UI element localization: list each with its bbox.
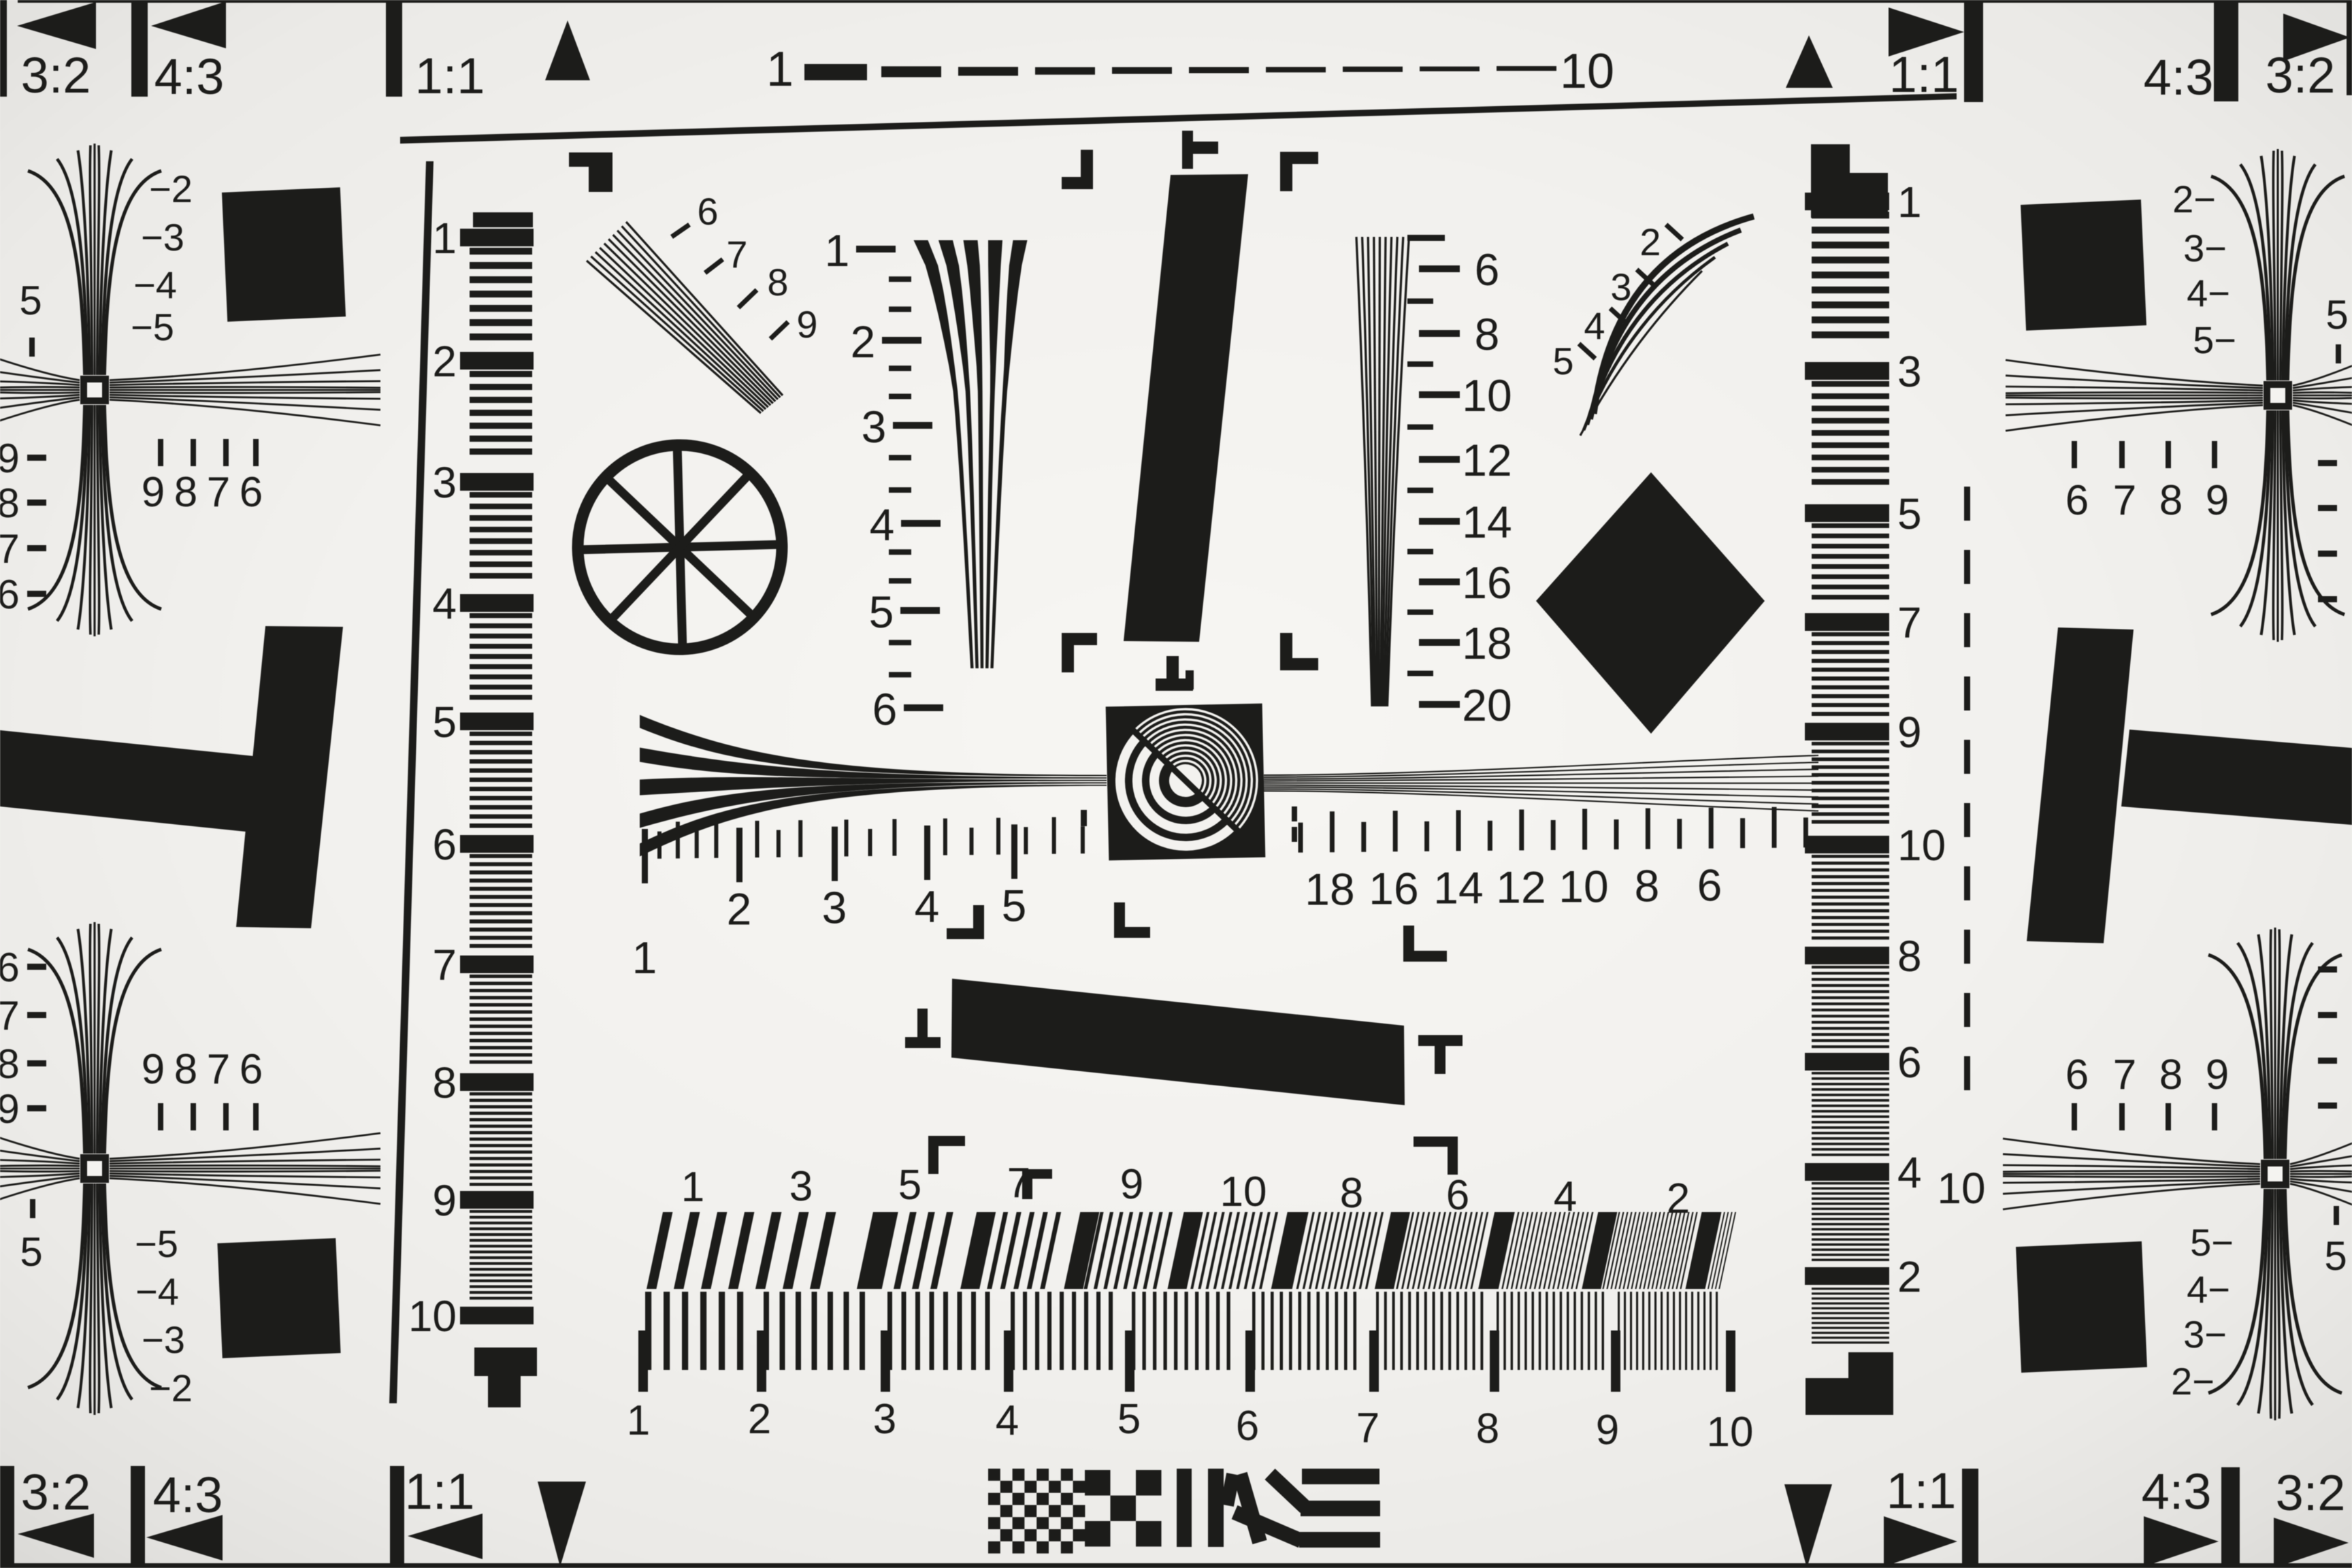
svg-text:1:1: 1:1	[405, 1463, 475, 1520]
svg-text:9: 9	[142, 1046, 165, 1093]
svg-text:7: 7	[1356, 1405, 1379, 1452]
svg-text:7: 7	[0, 526, 20, 572]
svg-text:16: 16	[1369, 863, 1418, 913]
svg-text:7: 7	[2113, 477, 2136, 524]
svg-text:8: 8	[0, 480, 20, 526]
svg-text:−2: −2	[149, 167, 193, 210]
svg-text:−3: −3	[141, 216, 184, 259]
svg-text:9: 9	[1897, 708, 1922, 757]
svg-text:5: 5	[19, 278, 42, 323]
svg-text:8: 8	[1340, 1170, 1363, 1217]
svg-text:2: 2	[1897, 1252, 1922, 1301]
svg-text:−5: −5	[131, 306, 174, 348]
svg-text:10: 10	[408, 1292, 457, 1341]
svg-text:9: 9	[796, 303, 817, 346]
svg-text:4:3: 4:3	[153, 1467, 223, 1523]
svg-text:1: 1	[632, 932, 657, 983]
svg-text:3:2: 3:2	[2276, 1465, 2346, 1521]
svg-text:6: 6	[1446, 1172, 1469, 1219]
svg-text:7: 7	[0, 993, 20, 1039]
svg-text:4: 4	[996, 1397, 1019, 1444]
svg-text:6: 6	[2065, 1051, 2089, 1098]
svg-text:9: 9	[0, 436, 20, 481]
svg-text:6: 6	[1697, 860, 1722, 911]
svg-text:9: 9	[0, 1086, 20, 1132]
svg-text:5: 5	[1552, 340, 1573, 382]
svg-text:5: 5	[432, 698, 457, 747]
svg-text:2: 2	[727, 883, 752, 934]
svg-text:4: 4	[1897, 1148, 1922, 1197]
svg-text:14: 14	[1462, 497, 1512, 547]
svg-text:12: 12	[1496, 862, 1546, 913]
svg-text:3:2: 3:2	[21, 47, 91, 103]
svg-text:6: 6	[1897, 1038, 1922, 1087]
svg-text:6: 6	[240, 469, 263, 516]
svg-text:2−: 2−	[2171, 1360, 2215, 1403]
svg-text:5: 5	[20, 1229, 42, 1275]
svg-text:2: 2	[748, 1396, 771, 1443]
svg-text:1: 1	[825, 225, 850, 276]
svg-text:4−: 4−	[2187, 272, 2230, 314]
svg-text:3: 3	[789, 1163, 813, 1210]
svg-text:10: 10	[1558, 862, 1608, 912]
svg-text:−4: −4	[133, 263, 177, 306]
svg-text:6: 6	[0, 572, 20, 617]
svg-text:4: 4	[432, 579, 457, 628]
svg-text:4: 4	[870, 500, 895, 550]
svg-text:3: 3	[1610, 265, 1631, 308]
svg-text:5: 5	[2325, 292, 2348, 338]
svg-text:−2: −2	[149, 1367, 193, 1409]
svg-text:8: 8	[432, 1058, 457, 1107]
svg-text:4: 4	[1584, 304, 1605, 347]
svg-text:1: 1	[432, 214, 457, 263]
svg-text:8: 8	[0, 1041, 20, 1087]
svg-text:2: 2	[432, 337, 457, 386]
svg-text:10: 10	[1937, 1164, 1985, 1213]
svg-text:3: 3	[1897, 347, 1922, 396]
svg-text:2: 2	[851, 316, 876, 367]
svg-text:18: 18	[1462, 618, 1512, 668]
svg-text:10: 10	[1560, 44, 1614, 99]
svg-text:4:3: 4:3	[2144, 49, 2214, 105]
svg-text:6: 6	[1475, 244, 1500, 295]
svg-text:8: 8	[767, 261, 788, 304]
svg-text:5−: 5−	[2193, 318, 2236, 361]
svg-text:3:2: 3:2	[2266, 47, 2336, 103]
svg-text:10: 10	[1462, 370, 1512, 421]
svg-text:5: 5	[1117, 1396, 1141, 1443]
svg-text:8: 8	[1897, 932, 1922, 981]
svg-text:4−: 4−	[2187, 1268, 2230, 1311]
svg-text:6: 6	[872, 684, 898, 734]
svg-text:−5: −5	[135, 1222, 178, 1265]
svg-text:10: 10	[1220, 1169, 1267, 1215]
svg-text:10: 10	[1707, 1409, 1754, 1456]
svg-text:7: 7	[1897, 598, 1922, 647]
svg-text:5−: 5−	[2190, 1221, 2234, 1264]
svg-text:3:2: 3:2	[21, 1464, 91, 1520]
svg-text:7: 7	[207, 1046, 230, 1093]
svg-text:6: 6	[0, 945, 20, 990]
svg-text:16: 16	[1462, 557, 1512, 608]
svg-text:10: 10	[1897, 821, 1946, 870]
svg-text:1: 1	[681, 1164, 704, 1211]
svg-text:3−: 3−	[2183, 227, 2227, 269]
svg-text:3: 3	[873, 1396, 896, 1443]
svg-text:8: 8	[1475, 309, 1500, 359]
svg-text:8: 8	[174, 1046, 197, 1093]
svg-text:1:1: 1:1	[1886, 1463, 1957, 1519]
svg-text:4:3: 4:3	[2142, 1463, 2212, 1520]
svg-text:5: 5	[898, 1162, 921, 1209]
svg-text:8: 8	[174, 469, 197, 516]
svg-text:3: 3	[822, 883, 847, 933]
svg-text:2: 2	[1667, 1175, 1690, 1222]
svg-text:1: 1	[1897, 178, 1922, 227]
svg-text:14: 14	[1433, 862, 1483, 913]
svg-text:2−: 2−	[2172, 178, 2216, 220]
svg-text:6: 6	[432, 820, 457, 869]
svg-text:12: 12	[1462, 435, 1512, 485]
svg-text:9: 9	[2206, 1051, 2229, 1098]
svg-text:6: 6	[240, 1046, 263, 1093]
svg-text:20: 20	[1462, 680, 1512, 730]
svg-text:4:3: 4:3	[154, 48, 225, 105]
svg-text:7: 7	[2113, 1051, 2136, 1098]
svg-text:7: 7	[207, 469, 230, 516]
svg-text:4: 4	[915, 881, 940, 932]
svg-text:9: 9	[1120, 1161, 1143, 1208]
svg-text:6: 6	[1236, 1403, 1259, 1450]
svg-text:8: 8	[1476, 1405, 1499, 1452]
svg-text:1: 1	[766, 42, 794, 97]
svg-text:3: 3	[862, 402, 887, 452]
svg-text:7: 7	[432, 941, 457, 990]
svg-text:1:1: 1:1	[415, 48, 485, 104]
svg-text:9: 9	[142, 469, 165, 516]
svg-text:6: 6	[697, 190, 718, 233]
svg-text:18: 18	[1305, 864, 1354, 914]
svg-text:5: 5	[2324, 1233, 2347, 1279]
svg-text:5: 5	[1002, 880, 1027, 930]
svg-text:3: 3	[432, 458, 457, 507]
svg-text:3−: 3−	[2183, 1313, 2227, 1356]
svg-text:9: 9	[2206, 477, 2229, 524]
svg-text:−4: −4	[135, 1270, 179, 1313]
svg-text:−3: −3	[142, 1318, 185, 1361]
svg-text:8: 8	[2159, 477, 2183, 524]
svg-text:8: 8	[1635, 861, 1660, 911]
svg-text:1: 1	[627, 1397, 650, 1444]
svg-text:2: 2	[1639, 220, 1661, 263]
svg-text:7: 7	[726, 233, 747, 276]
svg-text:9: 9	[432, 1176, 457, 1225]
svg-text:8: 8	[2159, 1051, 2183, 1098]
svg-text:5: 5	[1897, 489, 1922, 538]
svg-text:6: 6	[2065, 477, 2089, 524]
svg-text:9: 9	[1596, 1407, 1619, 1454]
svg-text:5: 5	[869, 587, 894, 637]
